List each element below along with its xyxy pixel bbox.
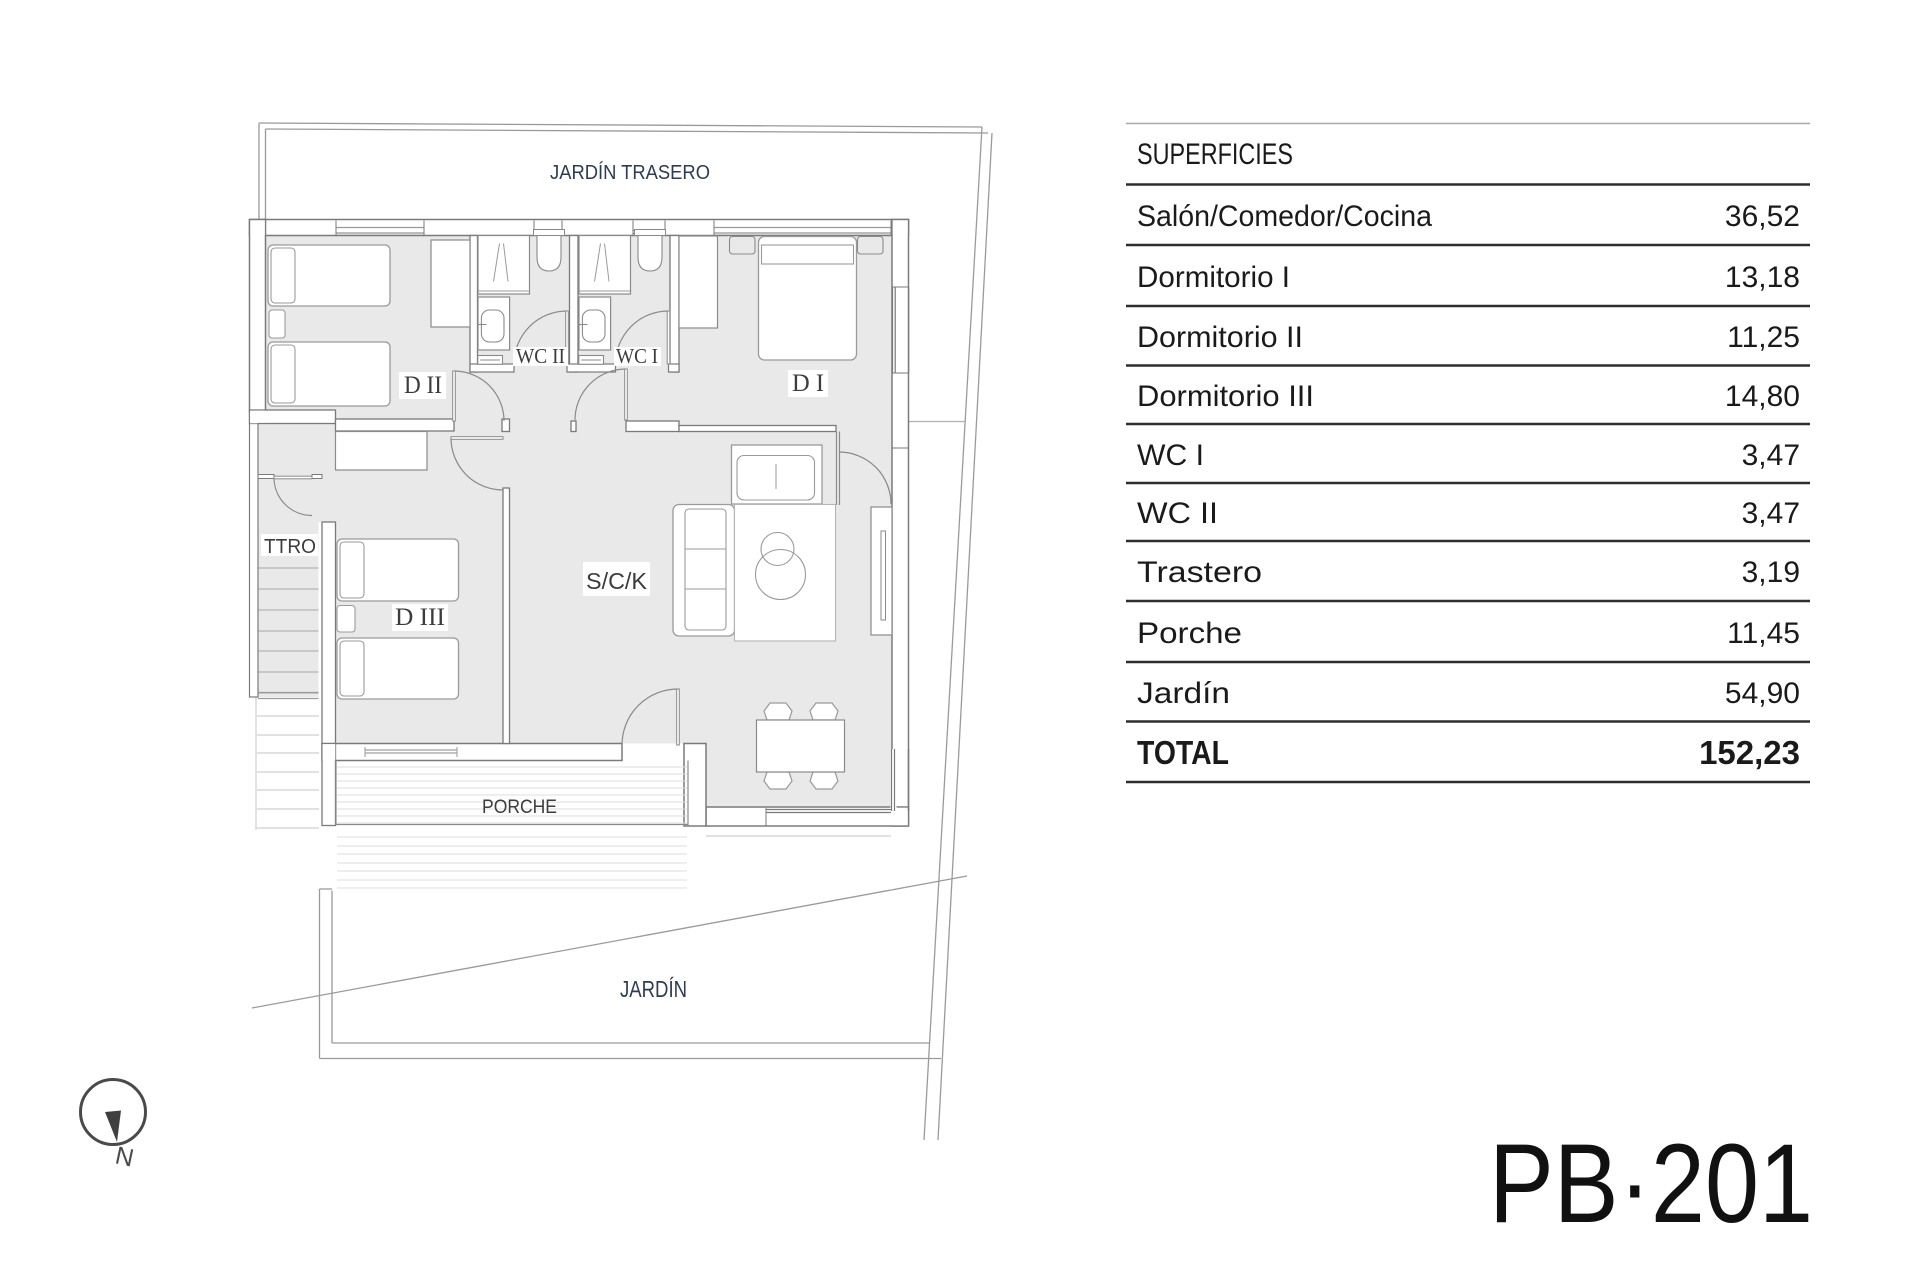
svg-text:TTRO: TTRO: [264, 536, 316, 558]
svg-text:54,90: 54,90: [1725, 677, 1800, 710]
svg-text:14,80: 14,80: [1725, 380, 1800, 413]
svg-text:Dormitorio II: Dormitorio II: [1137, 321, 1303, 354]
svg-text:Dormitorio III: Dormitorio III: [1137, 380, 1314, 413]
svg-text:11,45: 11,45: [1727, 617, 1800, 650]
svg-text:D I: D I: [792, 370, 824, 397]
svg-text:36,52: 36,52: [1725, 200, 1800, 233]
svg-text:Trastero: Trastero: [1137, 556, 1262, 589]
svg-text:WC II: WC II: [1137, 497, 1218, 530]
svg-text:PB·201: PB·201: [1489, 1121, 1813, 1246]
svg-text:D II: D II: [404, 372, 442, 399]
svg-text:152,23: 152,23: [1699, 734, 1800, 771]
svg-text:S/C/K: S/C/K: [586, 568, 648, 594]
svg-text:D III: D III: [395, 604, 445, 631]
svg-text:PORCHE: PORCHE: [482, 797, 557, 818]
svg-text:N: N: [113, 1141, 136, 1172]
svg-text:WC II: WC II: [516, 344, 565, 368]
svg-text:WC I: WC I: [616, 344, 658, 368]
svg-text:Salón/Comedor/Cocina: Salón/Comedor/Cocina: [1137, 200, 1432, 233]
svg-text:Jardín: Jardín: [1137, 677, 1230, 710]
svg-text:SUPERFICIES: SUPERFICIES: [1137, 138, 1293, 171]
svg-text:3,47: 3,47: [1742, 439, 1800, 472]
svg-text:Dormitorio I: Dormitorio I: [1137, 261, 1290, 294]
svg-text:Porche: Porche: [1137, 617, 1242, 650]
svg-text:3,19: 3,19: [1742, 556, 1800, 589]
svg-text:11,25: 11,25: [1727, 321, 1800, 354]
svg-text:13,18: 13,18: [1725, 261, 1800, 294]
svg-text:JARDÍN TRASERO: JARDÍN TRASERO: [550, 161, 710, 184]
svg-text:3,47: 3,47: [1742, 497, 1800, 530]
svg-text:JARDÍN: JARDÍN: [620, 976, 687, 1002]
svg-text:WC I: WC I: [1137, 439, 1204, 472]
svg-text:TOTAL: TOTAL: [1137, 734, 1229, 771]
